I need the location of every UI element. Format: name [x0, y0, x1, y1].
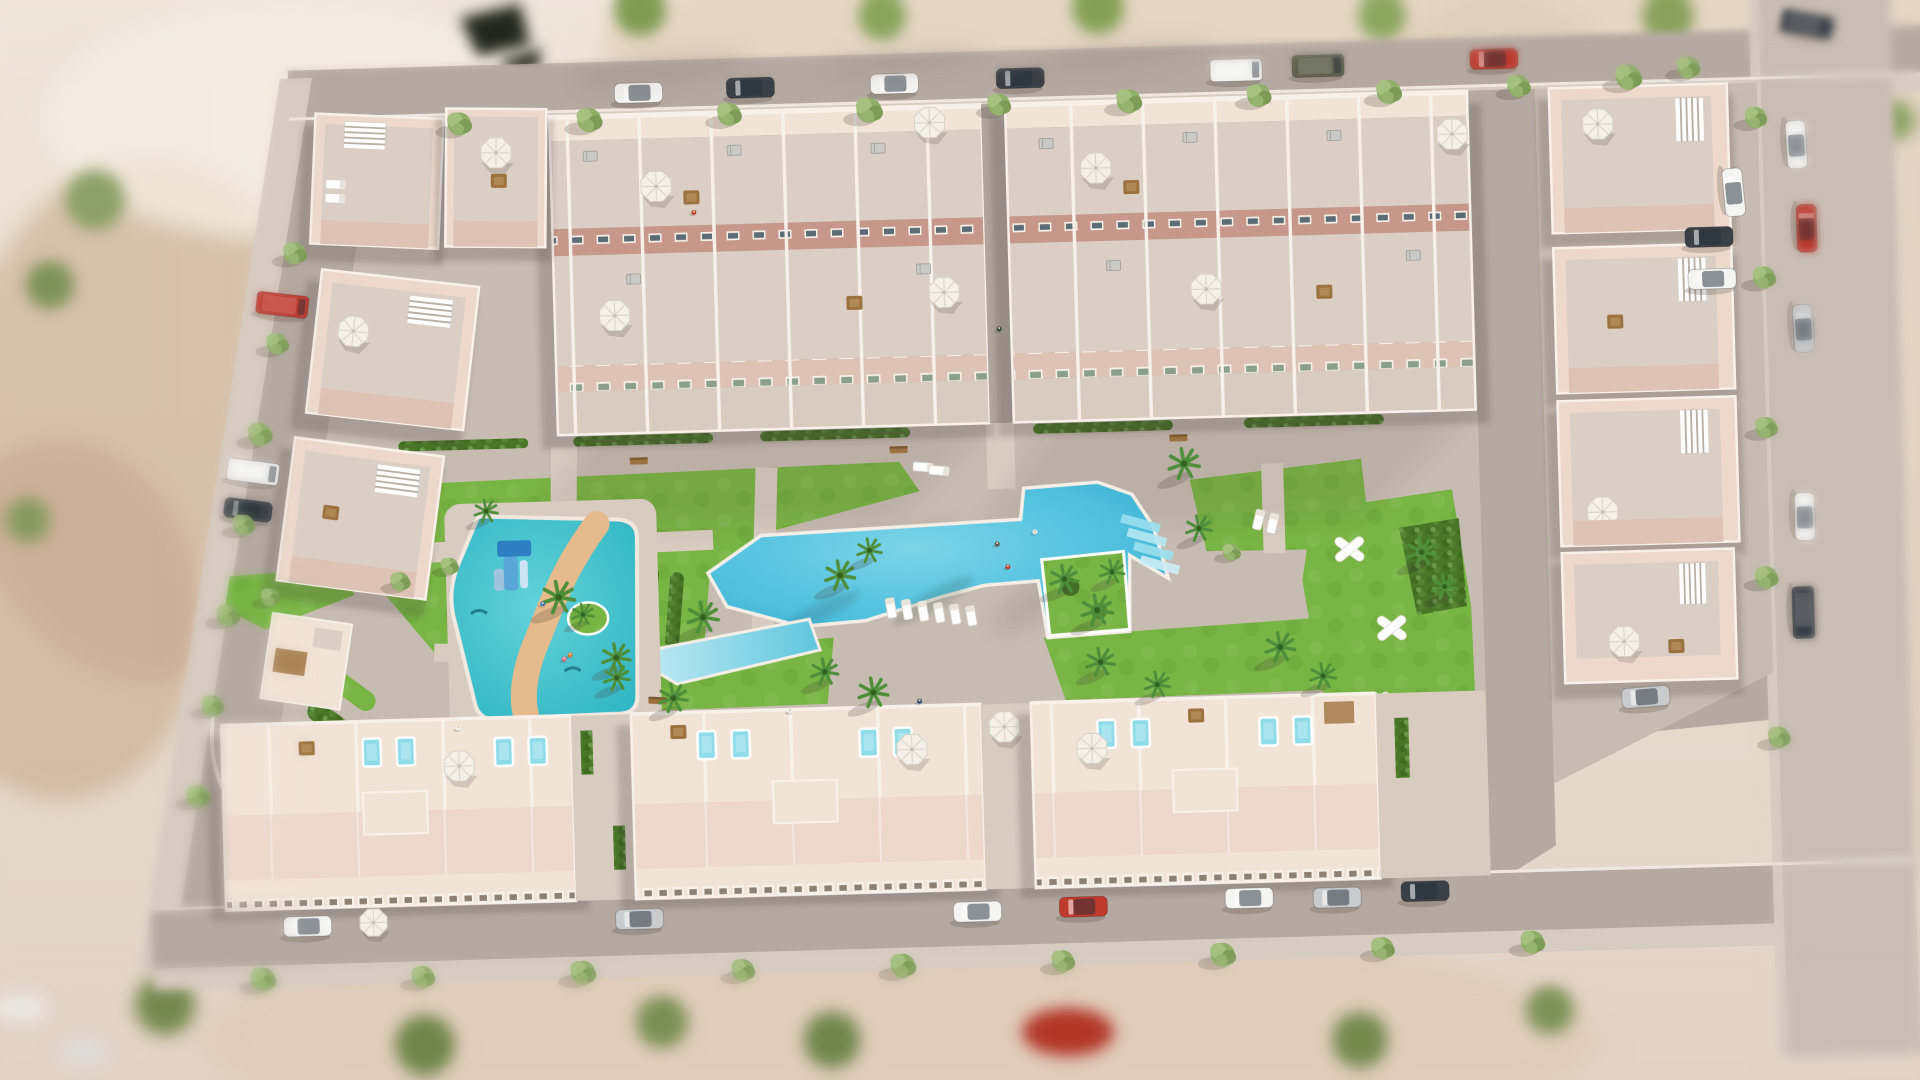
- parked-white-car: [279, 916, 332, 943]
- rooftop-stairs: [1675, 97, 1705, 141]
- rooftop-plunge-pool: [1131, 719, 1150, 747]
- parked-olive-van: [1288, 54, 1345, 84]
- rooftop-plunge-pool: [697, 731, 716, 759]
- south-row-d: [616, 702, 999, 909]
- pergola: [1324, 701, 1355, 724]
- parked-dark-car: [992, 67, 1045, 94]
- parked-white-car: [949, 901, 1002, 928]
- blurred-white-car: [58, 1039, 110, 1065]
- planter: [580, 730, 593, 774]
- rooftop-stairs: [374, 464, 421, 498]
- rooftop-plunge-pool: [396, 737, 415, 765]
- parked-red-car: [1790, 200, 1817, 253]
- villa: [298, 113, 449, 266]
- rooftop-plunge-pool: [1259, 717, 1278, 745]
- parked-dark-car: [1681, 226, 1734, 253]
- villa: [290, 268, 479, 448]
- parked-silver-car: [611, 908, 664, 935]
- development: [112, 0, 1920, 1080]
- parked-white-car: [1221, 887, 1274, 914]
- parked-white-car: [1684, 268, 1737, 295]
- terrace-table: [298, 741, 314, 755]
- aerial-render-scene: [0, 0, 1920, 1080]
- ac-unit: [1327, 130, 1341, 140]
- villa: [261, 436, 444, 618]
- rooftop-plunge-pool: [859, 728, 878, 756]
- parked-red-car: [1466, 48, 1519, 75]
- south-row-e: [1016, 691, 1393, 898]
- terrace-table: [683, 190, 699, 204]
- ac-unit: [871, 143, 885, 153]
- bench: [630, 457, 648, 464]
- parked-white-van: [1206, 58, 1263, 88]
- render-canvas: [0, 0, 1920, 1080]
- rooftop-stairs: [1680, 409, 1710, 453]
- bench: [889, 446, 907, 453]
- rooftop-stairs: [344, 121, 386, 150]
- bench: [1169, 434, 1187, 441]
- parked-silver-car: [1309, 887, 1362, 914]
- ac-unit: [1039, 138, 1053, 148]
- parked-dark-van: [1786, 582, 1816, 639]
- villa: [1537, 83, 1737, 247]
- rooftop-plunge-pool: [1293, 716, 1312, 744]
- rooftop-stairs: [407, 295, 454, 328]
- terrace-table: [670, 725, 686, 739]
- rooftop-plunge-pool: [731, 730, 750, 758]
- pergola: [272, 648, 307, 676]
- stair-bulkhead: [773, 780, 838, 824]
- rooftop-plunge-pool: [494, 738, 513, 766]
- blurred-red-car: [1022, 1008, 1114, 1056]
- planter: [1394, 718, 1410, 778]
- terrace-table: [846, 296, 862, 310]
- parked-red-car: [1055, 896, 1108, 923]
- ac-unit: [627, 274, 641, 284]
- ac-unit: [1406, 250, 1420, 260]
- ac-unit: [727, 145, 741, 155]
- lounger: [929, 465, 950, 476]
- parked-white-car: [1788, 488, 1815, 541]
- ac-unit: [583, 151, 597, 161]
- entrance-plaza: [1376, 690, 1491, 878]
- south-row-c: [206, 714, 589, 921]
- north-townhouse-block-a: [533, 104, 994, 449]
- north-townhouse-block-b: [989, 90, 1490, 437]
- stair-bulkhead: [363, 791, 428, 835]
- terrace-table: [1123, 180, 1139, 194]
- villa: [1550, 548, 1744, 699]
- stair-bulkhead: [1173, 768, 1238, 812]
- gatehouse: [260, 613, 352, 710]
- parked-dark-car: [1397, 880, 1450, 907]
- rooftop-stairs: [1679, 563, 1707, 605]
- ac-unit: [916, 264, 930, 274]
- ac-unit: [1106, 260, 1120, 270]
- ac-unit: [1183, 132, 1197, 142]
- parked-dark-car: [722, 77, 775, 104]
- unit-divider-walls: [1005, 91, 1476, 423]
- rooftop-plunge-pool: [362, 738, 381, 766]
- villa: [1541, 243, 1741, 407]
- terrace-table: [1316, 285, 1332, 299]
- terrace-table: [1188, 708, 1204, 722]
- villa: [1545, 396, 1745, 559]
- rooftop-plunge-pool: [528, 737, 547, 765]
